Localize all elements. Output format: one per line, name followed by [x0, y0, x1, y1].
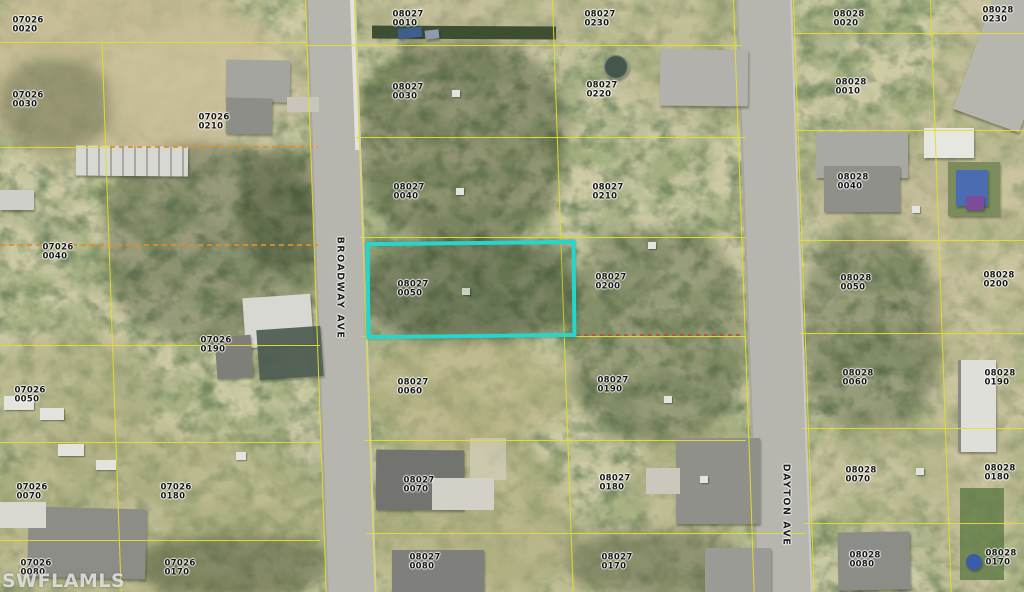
parcel-boundary-line — [793, 0, 815, 592]
parcel-boundary-line — [101, 42, 121, 592]
parcel-boundary-line — [733, 0, 755, 592]
parcel-boundary-line — [930, 0, 952, 592]
aerial-parcel-map: 07026 0020 07026 0030 07026 0210 07026 0… — [0, 0, 1024, 592]
watermark: SWFLAMLS — [2, 570, 125, 592]
subject-parcel-highlight — [365, 240, 576, 339]
parcel-boundary-line — [305, 0, 327, 592]
